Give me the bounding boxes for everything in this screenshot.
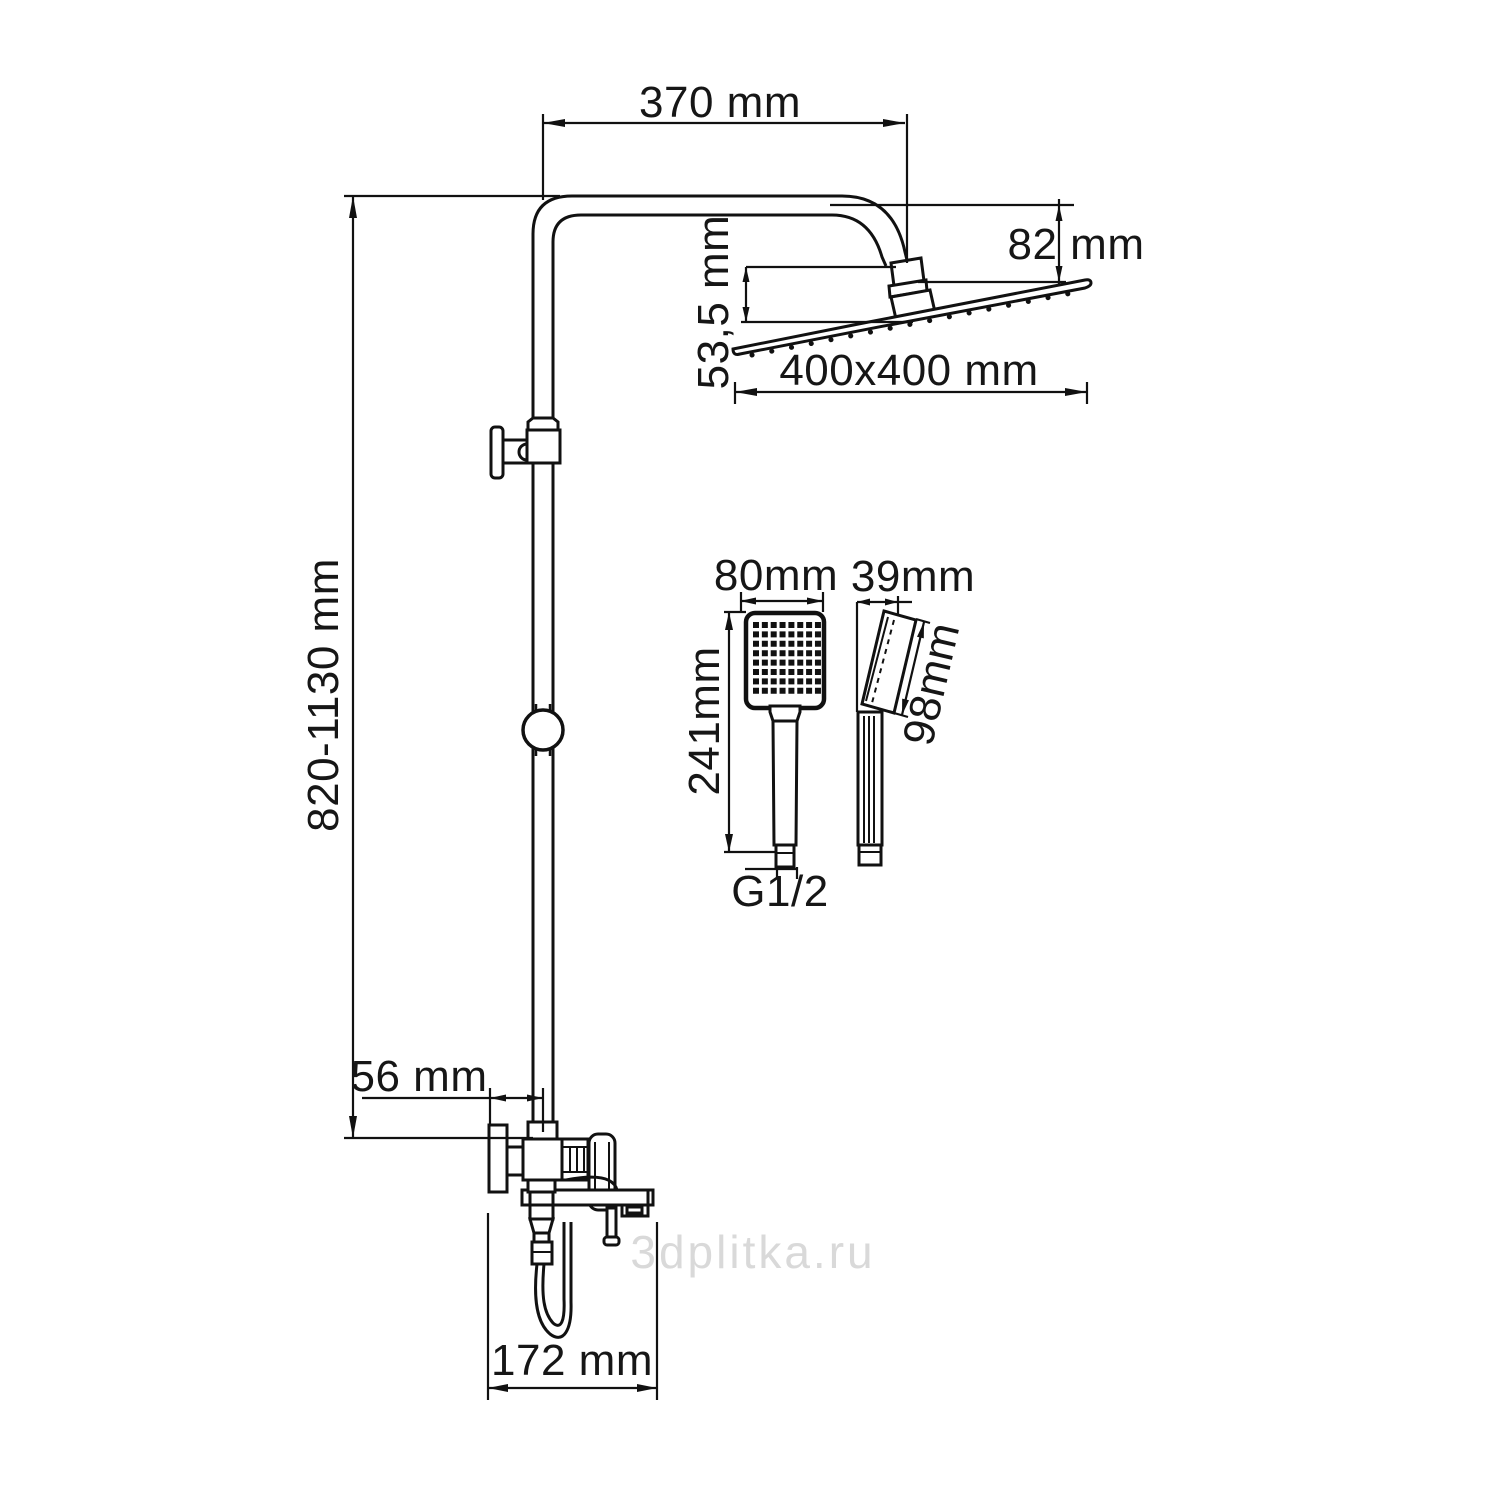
dim-thread: G1/2 <box>731 870 828 914</box>
dim-wall-offset: 56 mm <box>351 1055 488 1099</box>
technical-drawing: 3dplitka.ru <box>0 0 1500 1500</box>
dim-overhead-size: 400x400 mm <box>779 349 1038 393</box>
dim-column-height: 820-1130 mm <box>302 558 346 832</box>
slider-knob <box>523 704 563 756</box>
hose-outlet <box>530 1205 553 1264</box>
dim-head-drop: 53,5 mm <box>692 215 736 390</box>
dim-head-height: 82 mm <box>1008 223 1145 267</box>
spray-face-dots <box>753 625 821 691</box>
dim-handshower-depth: 39mm <box>851 555 975 599</box>
dim-handshower-width: 80mm <box>714 554 838 598</box>
wall-bracket <box>491 418 560 478</box>
shower-system-linework <box>0 0 1500 1500</box>
dim-arm-reach: 370 mm <box>639 81 801 125</box>
cartridge-nut <box>562 1139 588 1180</box>
dim-spout-reach: 172 mm <box>491 1339 653 1383</box>
dim-handshower-length: 241mm <box>683 646 727 795</box>
handshower-front-view <box>746 613 824 879</box>
